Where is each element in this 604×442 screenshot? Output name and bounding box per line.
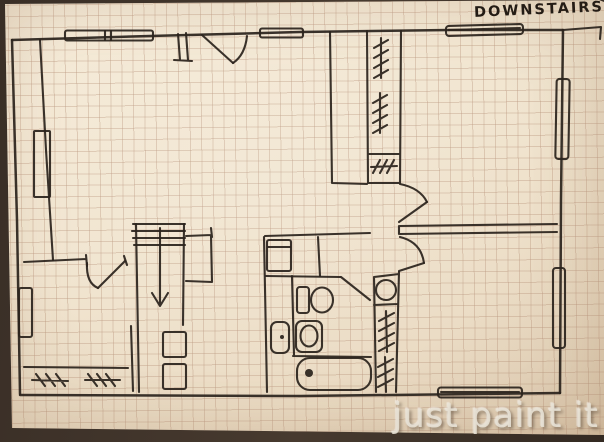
- door-leaf: [98, 261, 125, 288]
- window-left: [19, 288, 32, 337]
- lower-left-door: [87, 256, 127, 288]
- entry-door: [202, 35, 247, 63]
- wall-overshoot: [563, 27, 601, 39]
- toilet-bowl: [311, 288, 333, 313]
- sink: [296, 321, 322, 352]
- closet-rod: [24, 367, 128, 386]
- stair-wall-left-inner: [131, 326, 133, 391]
- door-swing-arc-upper: [400, 184, 427, 202]
- bathroom-door-leaf: [341, 277, 370, 300]
- shelf-2: [163, 364, 186, 389]
- wall-stub: [174, 33, 192, 61]
- door-swing-arc: [233, 36, 247, 63]
- bathroom: [266, 276, 371, 390]
- right-wall: [560, 30, 563, 393]
- window-right-2: [553, 268, 565, 348]
- appliance: [267, 240, 291, 271]
- watermark: just paint it: [393, 396, 599, 436]
- hallway: [399, 184, 557, 271]
- stair-wall-right: [183, 224, 184, 325]
- tread-hatch-2: [373, 93, 387, 133]
- basement-stairs: [131, 224, 185, 392]
- toilet: [297, 287, 333, 313]
- door-swing-arc-lower: [400, 237, 424, 263]
- stair-hall-wall: [330, 32, 367, 184]
- door-jamb: [124, 256, 127, 265]
- stair-side-closet: [186, 228, 212, 282]
- photo-of-sketch: DOWNSTAIRS just paint it: [0, 0, 604, 442]
- stairs-down-arrow: [152, 228, 168, 306]
- door-swing-arc: [87, 263, 98, 288]
- kitchen-top-wall: [265, 233, 370, 236]
- tread-hatch-3: [379, 311, 394, 352]
- tread-hatch-4: [378, 357, 393, 392]
- hanger-group-2: [85, 374, 120, 386]
- drain-dot: [305, 369, 313, 377]
- exterior-walls: [12, 27, 601, 396]
- bathtub: [297, 358, 371, 390]
- lower-left-room-wall: [24, 255, 87, 266]
- lower-stairs-column: [374, 272, 399, 392]
- kitchen-divider: [318, 237, 320, 276]
- closet-rail: [24, 367, 128, 368]
- door-leaf: [202, 35, 233, 63]
- toilet-tank: [297, 287, 309, 313]
- tread-hatch-1: [374, 38, 388, 78]
- left-wall: [12, 40, 20, 394]
- bathroom-top-wall: [266, 276, 340, 277]
- hall-double-wall: [399, 224, 557, 234]
- stair-wall-left: [136, 224, 139, 392]
- landing-hatch: [371, 160, 397, 173]
- shelf-1: [163, 332, 186, 357]
- door-leaf-lower: [399, 263, 424, 271]
- handle-dot: [280, 335, 284, 339]
- kitchen: [264, 233, 370, 392]
- under-stair-shelves: [163, 332, 186, 389]
- upper-staircase: [330, 31, 401, 184]
- vanity-cabinet: [271, 322, 289, 353]
- floorplan-drawing: [0, 0, 604, 442]
- door-leaf-upper: [399, 202, 427, 222]
- hanger-group-1: [32, 374, 68, 386]
- wash-basin: [376, 280, 396, 300]
- stair-treads: [132, 224, 185, 245]
